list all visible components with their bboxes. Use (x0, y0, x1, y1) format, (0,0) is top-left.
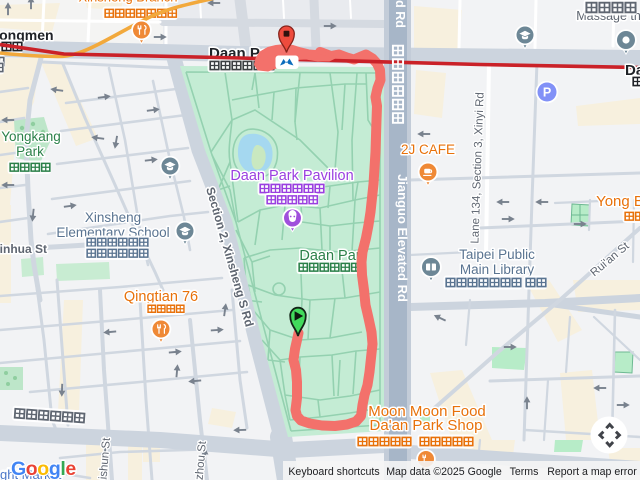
svg-text:Map data ©2025 Google: Map data ©2025 Google (386, 466, 502, 478)
svg-text:Park: Park (16, 144, 44, 159)
svg-text:Keyboard shortcuts: Keyboard shortcuts (288, 466, 379, 478)
svg-text:Main Library: Main Library (460, 262, 535, 277)
svg-text:Xinsheng: Xinsheng (85, 210, 141, 225)
svg-text:Terms: Terms (510, 466, 539, 478)
svg-text:d Rd: d Rd (393, 0, 407, 28)
svg-text:P: P (543, 86, 551, 100)
svg-text:Jianguo Elevated Rd: Jianguo Elevated Rd (395, 174, 410, 302)
svg-text:Report a map error: Report a map error (547, 466, 637, 478)
svg-text:Google: Google (11, 458, 76, 480)
svg-text:Taipei Public: Taipei Public (459, 247, 535, 262)
svg-text:Yong B: Yong B (596, 193, 640, 210)
svg-text:Xinsheng Branch: Xinsheng Branch (78, 0, 177, 5)
svg-text:2J CAFE: 2J CAFE (401, 142, 455, 157)
svg-text:Yongkang: Yongkang (1, 129, 61, 144)
svg-text:Da'an Park Shop: Da'an Park Shop (370, 417, 483, 434)
svg-text:Jinhua St: Jinhua St (0, 242, 47, 256)
